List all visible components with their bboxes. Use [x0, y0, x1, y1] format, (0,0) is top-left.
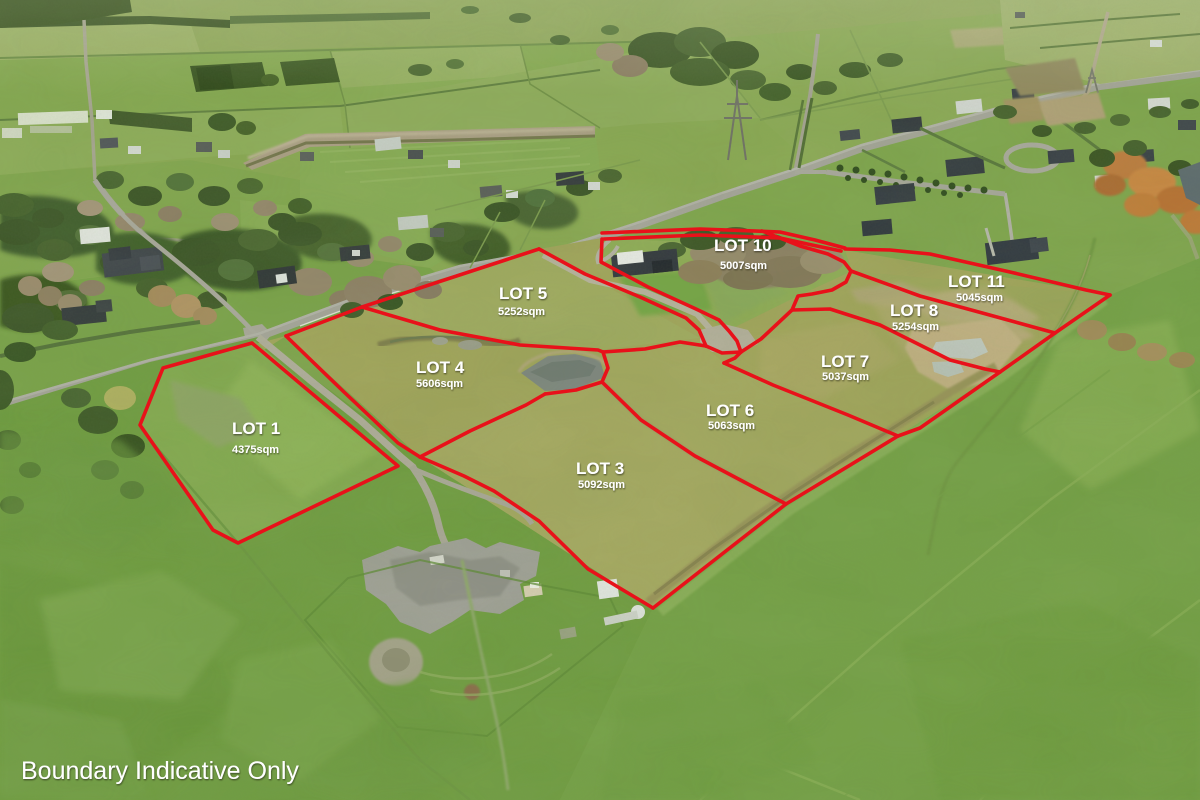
svg-text:LOT 11: LOT 11: [948, 272, 1005, 291]
svg-text:Boundary Indicative Only: Boundary Indicative Only: [21, 757, 299, 785]
svg-text:4375sqm: 4375sqm: [232, 444, 279, 456]
svg-text:5252sqm: 5252sqm: [498, 306, 545, 318]
svg-text:LOT 7: LOT 7: [821, 352, 869, 371]
svg-text:5007sqm: 5007sqm: [720, 260, 767, 272]
svg-text:LOT 3: LOT 3: [576, 459, 624, 478]
svg-text:LOT 10: LOT 10: [714, 236, 772, 255]
svg-text:5037sqm: 5037sqm: [822, 371, 869, 383]
svg-text:5606sqm: 5606sqm: [416, 378, 463, 390]
svg-text:5063sqm: 5063sqm: [708, 420, 755, 432]
svg-text:5092sqm: 5092sqm: [578, 479, 625, 491]
svg-text:LOT 8: LOT 8: [890, 301, 938, 320]
svg-text:5045sqm: 5045sqm: [956, 292, 1003, 304]
svg-text:LOT 1: LOT 1: [232, 419, 280, 438]
svg-text:LOT 4: LOT 4: [416, 358, 465, 377]
svg-text:LOT 5: LOT 5: [499, 284, 547, 303]
svg-text:5254sqm: 5254sqm: [892, 321, 939, 333]
svg-text:LOT 6: LOT 6: [706, 401, 754, 420]
